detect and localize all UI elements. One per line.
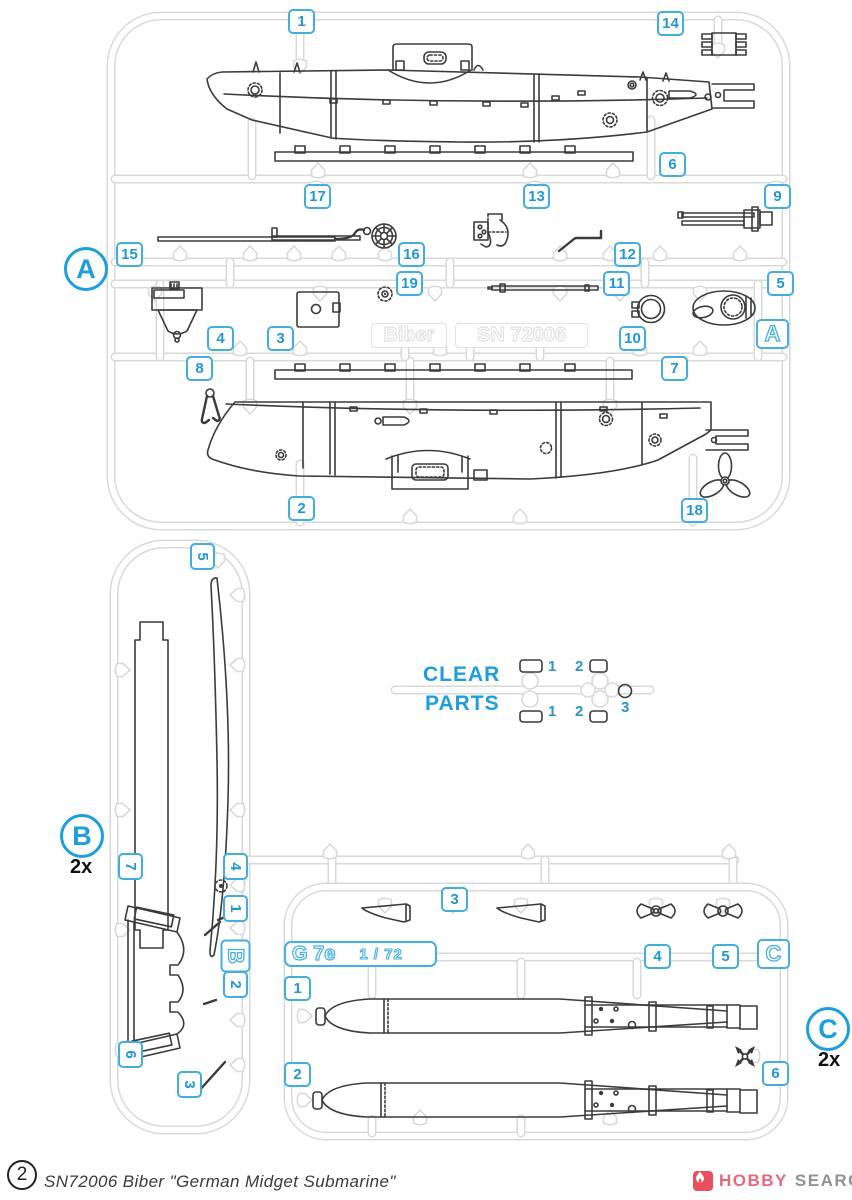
label-a3: 3 (267, 326, 294, 351)
sprue-b-badge: B (60, 814, 104, 858)
label-b3: 3 (177, 1071, 202, 1098)
label-b1: 1 (223, 895, 248, 922)
label-a15: 15 (116, 242, 143, 267)
label-b2: 2 (223, 971, 248, 998)
part-a6-deck-strip (275, 146, 633, 161)
label-c4: 4 (644, 944, 671, 969)
sprue-c-multiplier: 2x (818, 1049, 840, 1072)
sprue-b-multiplier: 2x (70, 856, 92, 879)
sprue-c-frame (288, 887, 784, 1136)
clear-parts-title-line2: PARTS (425, 692, 500, 716)
part-a18-propeller (698, 453, 753, 501)
label-a1: 1 (288, 9, 315, 34)
label-c1: 1 (284, 976, 311, 1001)
label-a17: 17 (304, 184, 331, 209)
flame-icon (693, 1171, 713, 1191)
hobby-search-logo: HOBBY SEARCH (693, 1171, 852, 1191)
label-b4: 4 (223, 853, 248, 880)
sprue-a-plate-number: SN 72006 (455, 323, 588, 348)
part-c1-torpedo (316, 997, 757, 1035)
part-a12-bent-rod (559, 231, 601, 251)
parts-diagram-page: Biber SN 72006 1 14 6 17 13 9 15 16 12 1… (0, 0, 852, 1200)
label-b6: 6 (118, 1041, 143, 1068)
sprue-c-badge: C (806, 1007, 850, 1051)
label-a4: 4 (207, 326, 234, 351)
label-a13: 13 (523, 184, 550, 209)
connector-runners (248, 844, 736, 885)
torpedo-type-text: G 7e (292, 943, 335, 966)
label-c2: 2 (284, 1062, 311, 1087)
sprue-b-frame-letter: B (221, 940, 251, 973)
sprue-c-frame-letter: C (757, 939, 790, 969)
label-a11: 11 (603, 271, 630, 296)
part-b-cradle (125, 906, 184, 1060)
label-a19: 19 (396, 271, 423, 296)
label-a18: 18 (681, 498, 708, 523)
label-c6: 6 (762, 1061, 789, 1086)
part-a1-upper-hull (207, 44, 754, 142)
part-a9-gun (678, 207, 772, 231)
logo-word-search: SEARCH (795, 1171, 852, 1191)
part-a19-cog (378, 287, 392, 301)
kit-title: SN72006 Biber "German Midget Submarine" (44, 1172, 396, 1192)
clear-label-2-top: 2 (575, 658, 583, 675)
label-b7: 7 (118, 853, 143, 880)
clear-label-2-bottom: 2 (575, 703, 583, 720)
label-a14: 14 (657, 11, 684, 36)
part-a10-ring (632, 296, 665, 323)
clear-label-3: 3 (621, 699, 629, 716)
label-b5: 5 (190, 543, 215, 570)
label-a16: 16 (398, 242, 425, 267)
part-b-keel-board (135, 622, 168, 948)
label-a10: 10 (619, 326, 646, 351)
sprue-a-badge: A (64, 247, 108, 291)
label-a5: 5 (767, 271, 794, 296)
label-a6: 6 (659, 152, 686, 177)
label-a7: 7 (661, 356, 688, 381)
label-a12: 12 (614, 242, 641, 267)
part-a8-clevis (202, 389, 220, 423)
label-a2: 2 (288, 496, 315, 521)
part-b2-pin (204, 1000, 216, 1004)
part-a5-hatch (692, 291, 755, 325)
clear-parts-title-line1: CLEAR (423, 663, 500, 687)
torpedo-scale-text: 1 / 72 (359, 946, 403, 963)
part-a7-deck-strip (275, 364, 632, 379)
sprue-a-plate-biber: Biber (371, 323, 447, 348)
label-a8: 8 (186, 356, 213, 381)
clear-label-1-bottom: 1 (548, 703, 556, 720)
sprue-c-type-plate: G 7e 1 / 72 (284, 941, 437, 967)
clear-label-1-top: 1 (548, 658, 556, 675)
part-a16-wheel (372, 224, 396, 248)
part-a2-lower-hull (208, 402, 749, 489)
part-c2-torpedo (313, 1081, 757, 1119)
part-a13-bracket (474, 214, 508, 247)
label-c5: 5 (712, 944, 739, 969)
sprue-illustration (0, 0, 852, 1200)
sprue-a-frame-letter: A (756, 319, 789, 349)
logo-word-hobby: HOBBY (719, 1171, 788, 1191)
sheet-number: 2 (7, 1160, 37, 1190)
label-a9: 9 (764, 184, 791, 209)
label-c3: 3 (441, 887, 468, 912)
part-a15-rod (158, 228, 371, 242)
